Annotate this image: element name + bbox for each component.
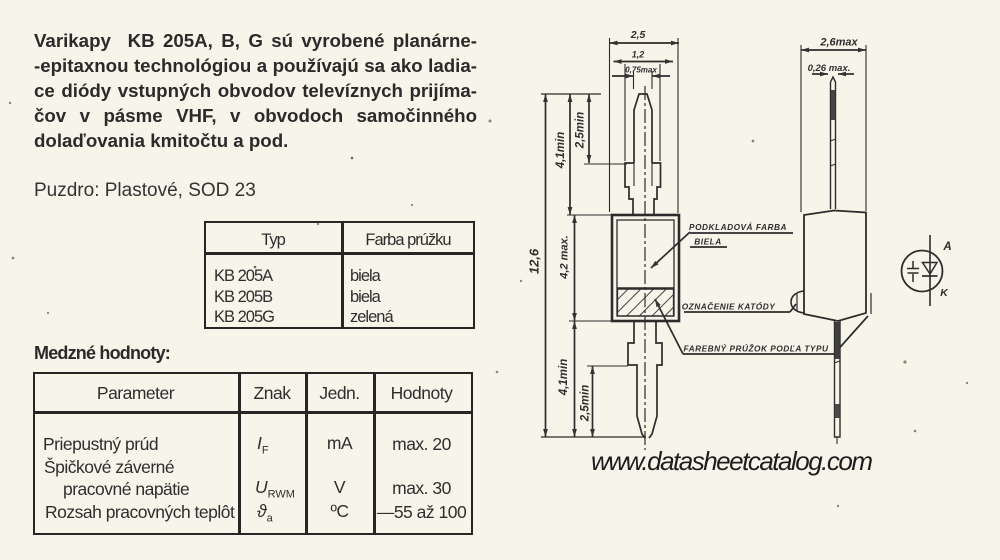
svg-text:12,6: 12,6 [527,248,542,274]
svg-text:1,2: 1,2 [632,50,645,60]
svg-text:2,5: 2,5 [630,29,646,41]
svg-text:0,26 max.: 0,26 max. [808,63,851,74]
svg-text:0,75max: 0,75max [625,66,657,75]
svg-text:2,5min: 2,5min [575,112,587,149]
svg-text:4,2 max.: 4,2 max. [559,235,571,279]
svg-text:PODKLADOVÁ FARBA: PODKLADOVÁ FARBA [689,222,787,232]
svg-text:BIELA: BIELA [694,237,721,247]
svg-text:K: K [940,287,949,299]
svg-text:A: A [942,241,951,253]
svg-text:2,5min: 2,5min [580,385,592,422]
svg-text:4,1min: 4,1min [555,132,567,169]
svg-text:FAREBNÝ PRÚŽOK PODĽA TYPU: FAREBNÝ PRÚŽOK PODĽA TYPU [684,343,829,354]
svg-text:4,1min: 4,1min [558,359,570,396]
svg-text:2,6max: 2,6max [819,37,858,49]
svg-text:OZNAČENIE KATÓDY: OZNAČENIE KATÓDY [682,301,777,312]
